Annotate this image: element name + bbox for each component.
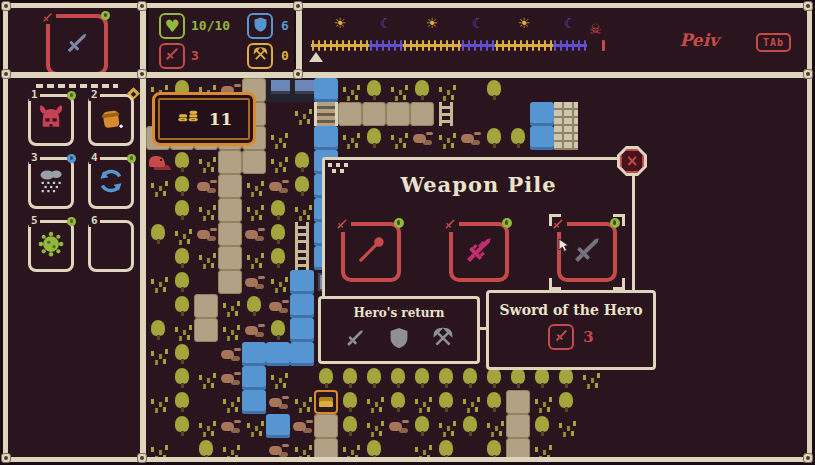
frame-rivet-icon	[803, 69, 813, 79]
selection-bracket	[549, 214, 561, 226]
close-button[interactable]: ×	[617, 146, 647, 176]
corner-deco	[328, 163, 332, 167]
frame-rivet-icon	[1, 69, 11, 79]
shield-icon	[387, 326, 411, 354]
weapon-pile-slot-1[interactable]	[341, 222, 401, 282]
mouse-cursor-icon	[557, 238, 573, 258]
weapon-slots-row	[325, 222, 632, 282]
sword-icon	[343, 326, 367, 354]
dialog-title: Weapon Pile	[325, 172, 632, 197]
game-screen: ♥ 10/10 6 3 0 ☀☾☀☾☀☾☠ Peiv TAb 1	[0, 0, 815, 465]
loadout-tooltip: Hero's return	[318, 296, 480, 364]
frame-rivet-icon	[137, 1, 147, 11]
frame-rivet-icon	[293, 1, 303, 11]
hero-sword-icon	[569, 232, 605, 272]
frame-rivet-icon	[803, 453, 813, 463]
close-icon: ×	[626, 152, 639, 170]
horizontal-divider	[3, 72, 812, 78]
frame-rivet-icon	[803, 1, 813, 11]
weapon-pile-slot-3[interactable]	[557, 222, 617, 282]
selection-bracket	[613, 214, 625, 226]
frame-rivet-icon	[137, 69, 147, 79]
durability-dot-icon	[502, 218, 512, 228]
durability-dot-icon	[394, 218, 404, 228]
item-title: Sword of the Hero	[489, 302, 653, 318]
attack-stat-box	[548, 324, 574, 350]
item-tooltip: Sword of the Hero 3	[486, 290, 656, 370]
ornate-sword-icon	[461, 232, 497, 272]
sword-marker-icon	[442, 215, 459, 232]
frame-rivet-icon	[1, 1, 11, 11]
selection-bracket	[613, 278, 625, 290]
attack-stat-value: 3	[583, 328, 593, 346]
frame-rivet-icon	[293, 69, 303, 79]
spear-icon	[353, 232, 389, 272]
sword-icon	[553, 327, 570, 348]
stats-divider-line	[296, 3, 302, 78]
loadout-icons	[321, 326, 477, 354]
selection-bracket	[549, 278, 561, 290]
coins-icon	[176, 105, 200, 133]
weapon-pile-slot-2[interactable]	[449, 222, 509, 282]
axes-icon	[431, 326, 455, 354]
frame-rivet-icon	[137, 453, 147, 463]
frame-rivet-icon	[1, 453, 11, 463]
coin-count: 11	[209, 109, 233, 129]
sword-marker-icon	[334, 215, 351, 232]
coin-counter-badge: 11	[152, 92, 256, 146]
loadout-title: Hero's return	[321, 306, 477, 320]
